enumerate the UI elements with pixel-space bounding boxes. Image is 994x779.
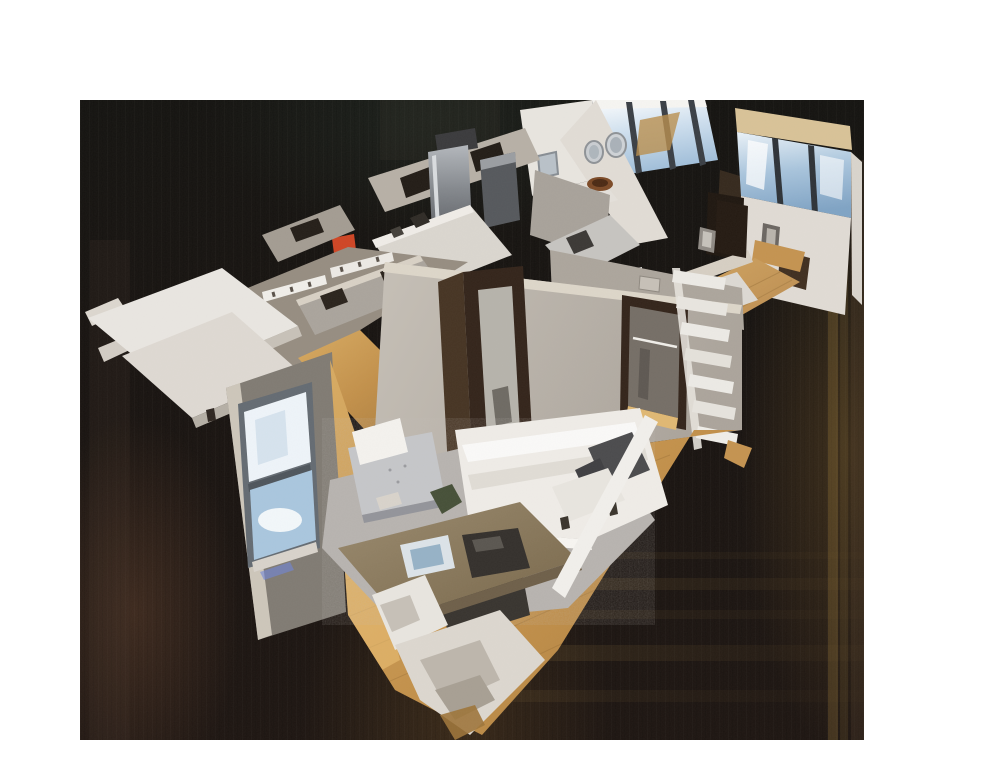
dollhouse-model bbox=[80, 100, 864, 740]
dollhouse-viewport[interactable] bbox=[80, 100, 864, 740]
page bbox=[0, 0, 994, 779]
grain-overlay bbox=[80, 100, 864, 740]
